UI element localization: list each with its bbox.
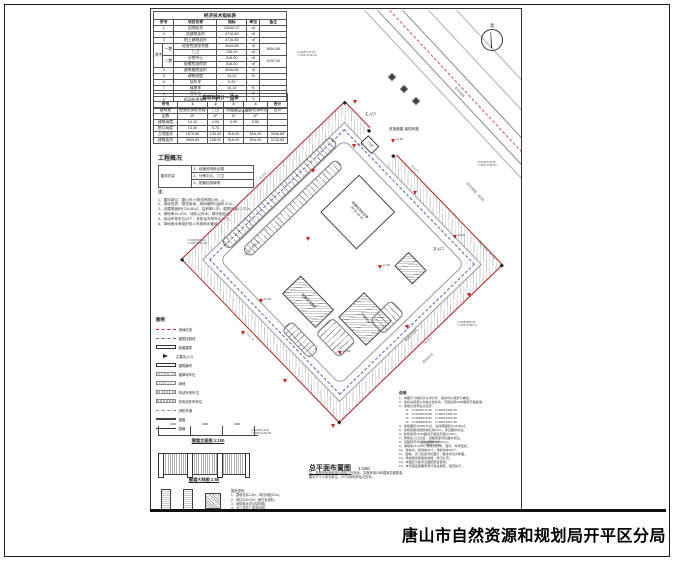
elevation-marker-icon: 12.50 — [391, 139, 395, 143]
fence-post-section — [161, 489, 171, 511]
marker-triangle — [378, 265, 382, 269]
table-cell: 经营检测综合楼 — [178, 108, 208, 114]
overview-comp-item: 3、配套检测库房 — [191, 180, 253, 187]
building-label: 配套检测库房 — [300, 294, 316, 310]
overview-comp-item: 2、分拣中心、门卫 — [191, 173, 253, 180]
elevation-marker-icon — [467, 293, 471, 297]
north-needle-shadow — [490, 32, 491, 48]
table-cell: 3549.85 — [178, 137, 208, 143]
legend-item: 建筑控制线 — [156, 334, 220, 343]
coordinate-label: X=4283478.63Y=40571203.48 — [251, 429, 271, 436]
table-cell: 其中 — [154, 43, 163, 67]
legend-label: 非机动车停车位 — [179, 399, 203, 404]
marker-triangle — [405, 325, 409, 329]
table-title: 建筑物统计一览表 — [154, 94, 288, 102]
dim-tick — [158, 426, 159, 435]
plan-label: 现状围墙（拆除） — [465, 181, 487, 204]
table-cell: 4716.85 — [268, 137, 288, 143]
elevation-marker-icon — [353, 100, 357, 104]
edge-dimension: 219.77 — [245, 332, 255, 342]
arrow-symbol — [163, 354, 168, 358]
edge-dimension: 224.91 — [423, 336, 433, 346]
elevation-marker-icon: 12.62 — [453, 235, 457, 239]
table-cell: 135.00 — [208, 137, 224, 143]
overview-comp-label: 建设内容 — [159, 166, 192, 188]
elevation-marker-icon: 12.60 — [259, 299, 263, 303]
legend-item: 建筑编号 — [156, 361, 220, 370]
street-tree-icon — [388, 73, 396, 81]
fence-post-section — [183, 489, 193, 511]
marker-triangle — [467, 293, 471, 297]
notes-lines: 1、本图尺寸除标高以米计外，其余均以毫米为单位。2、坐标采用唐山市独立坐标系，高… — [399, 396, 521, 468]
stripes-symbol — [156, 390, 176, 395]
marker-triangle — [338, 351, 342, 355]
coordinate-y: Y=40571206.15 — [297, 54, 317, 57]
table-title: 经济技术指标表 — [154, 12, 287, 20]
overview-row: 建设内容1、经营检测综合楼 — [159, 166, 254, 173]
elevation-marker-icon: 12.56 — [352, 144, 356, 148]
legend-label: 建筑控制线 — [179, 336, 196, 341]
legend-label: 主要出入口 — [176, 354, 193, 359]
road-line — [402, 10, 522, 147]
elevation-marker-icon — [413, 191, 417, 195]
dim-text: 3000 — [170, 422, 176, 426]
fence-elevation-drawing: 300030003000 围墙立面图 1:100 — [158, 421, 258, 444]
legend-item: 植草砖车位 — [156, 370, 220, 379]
elevation-marker-icon — [241, 331, 245, 335]
coordinate-label: X=4283771.25Y=40571206.15 — [297, 51, 317, 58]
table-title-row: 经济技术指标表 — [154, 12, 287, 20]
legend-item: 绿地 — [156, 379, 220, 388]
elevation-marker-icon: 12.55 — [378, 265, 382, 269]
double-line-symbol — [156, 418, 176, 420]
marker-triangle — [241, 331, 245, 335]
legend-label: 消防车道 — [179, 408, 193, 413]
stripes2-symbol — [156, 399, 176, 404]
marker-triangle — [391, 139, 395, 143]
table-cell: 建筑面积 — [154, 137, 178, 143]
table-cell: 一期 — [163, 43, 174, 55]
fence-elevation-title: 围墙立面图 1:100 — [158, 438, 258, 444]
coordinate-label: X=4283718.40Y=40571296.51 — [477, 161, 497, 168]
table-title-row: 建筑物统计一览表 — [154, 94, 288, 102]
hatch2-symbol — [156, 381, 176, 386]
fence-post — [217, 453, 223, 478]
legend-item: 主要出入口 — [156, 352, 220, 361]
marker-elevation: 12.50 — [396, 137, 403, 141]
boundary-corner-marker — [180, 257, 184, 261]
table-row: 建筑面积3549.85135.00516.00516.004716.85 — [154, 137, 288, 143]
marker-triangle — [331, 424, 335, 428]
table-cell: 3684.85 — [260, 43, 287, 55]
plan-title-notes: 注：本图坐标采用唐山市独立坐标系，高程采用1985国家高程基准。图中尺寸以米为单… — [309, 471, 419, 480]
marker-triangle — [283, 379, 287, 383]
elevation-marker-icon — [311, 169, 315, 173]
plan-label: 用地红线 — [421, 352, 434, 365]
building-label: 分拣中心 — [359, 313, 371, 325]
coordinate-y: Y=40571296.51 — [477, 164, 497, 167]
drawing-sheet: 经济技术指标表序号项目名称指标单位备注1用地面积23045.37㎡2总建筑面积4… — [150, 8, 522, 511]
fence-post — [187, 453, 193, 478]
overview-comp-item: 1、经营检测综合楼 — [191, 166, 253, 173]
north-arrow: 北 — [481, 23, 503, 53]
plan-label: 改造道路 接现状路 — [389, 127, 419, 132]
overview-table: 建设内容1、经营检测综合楼2、分拣中心、门卫3、配套检测库房 — [158, 165, 254, 188]
dash-gray-symbol — [156, 410, 176, 411]
hatch1-symbol — [156, 372, 176, 377]
marker-triangle — [413, 191, 417, 195]
general-note-line: 14、未尽事宜按国家现行有关规范、规定执行。 — [399, 464, 521, 468]
coordinate-y: Y=40571057.36 — [187, 242, 207, 245]
legend-item: 非机动车停车位 — [156, 397, 220, 406]
building-label: 门卫 — [366, 141, 373, 148]
plan-label: 次入口 — [433, 247, 444, 252]
legend: 图例 用地红线建筑控制线新建建筑主要出入口建筑编号植草砖车位绿地机动车停车位非机… — [156, 317, 220, 433]
elevation-marker-icon — [306, 237, 310, 241]
legend-rows: 用地红线建筑控制线新建建筑主要出入口建筑编号植草砖车位绿地机动车停车位非机动车停… — [156, 325, 220, 433]
fence-dimension-strip: 300030003000 — [158, 421, 258, 436]
plan-note-line: 图中尺寸以米为单位，X/Y为用地界址点坐标。 — [309, 475, 419, 479]
fence-footing-section — [205, 493, 221, 509]
fence-panel-drawing — [158, 453, 250, 475]
marker-elevation: 12.55 — [383, 263, 390, 267]
table-cell: 1032.00 — [260, 55, 287, 67]
coordinate-label: X=4283726.10Y=40571124.66 — [229, 107, 249, 114]
marker-triangle — [311, 169, 315, 173]
marker-triangle — [352, 144, 356, 148]
site-boundary: 219.77 224.91 219.77 224.91 经营检测综合楼2F H=… — [181, 101, 503, 423]
overview-title: 工程概况 — [158, 153, 288, 162]
marker-triangle — [306, 237, 310, 241]
boundary-corner-marker — [500, 263, 504, 267]
fence-section-details — [161, 487, 227, 511]
building-list-table-host: 建筑物统计一览表序号1234合计建筑物经营检测综合楼门卫分拣中心配套检测库房总计… — [153, 93, 287, 144]
dim-tick — [190, 426, 191, 435]
marker-elevation: 12.60 — [264, 297, 271, 301]
dim-text: 3000 — [202, 422, 208, 426]
coordinate-y: Y=40571338.74 — [457, 324, 477, 327]
rect-symbol — [156, 345, 176, 350]
general-notes-block: 说明: 1、本图尺寸除标高以米计外，其余均以毫米为单位。2、坐标采用唐山市独立坐… — [399, 391, 521, 468]
building-label: 经营检测综合楼2F H=14.10 — [347, 201, 368, 222]
fence-post — [245, 453, 251, 478]
red-dash-symbol — [156, 329, 176, 330]
north-circle — [481, 29, 503, 51]
numbox-symbol — [156, 363, 176, 368]
agency-title: 唐山市自然资源和规划局开平区分局 — [402, 522, 666, 546]
legend-label: 植草砖车位 — [179, 372, 196, 377]
edge-dimension: 219.77 — [410, 164, 420, 174]
boundary-corner-marker — [337, 420, 341, 424]
dim-text: 3000 — [234, 422, 240, 426]
elevation-marker-icon — [331, 424, 335, 428]
legend-item: 机动车停车位 — [156, 388, 220, 397]
site-plan-document: 经济技术指标表序号项目名称指标单位备注1用地面积23045.37㎡2总建筑面积4… — [0, 0, 674, 561]
elevation-marker-icon — [405, 325, 409, 329]
fence-detail-drawing: 围墙大样图 1:50 — [158, 453, 250, 483]
table-cell: 516.00 — [224, 137, 244, 143]
legend-item: 新建建筑 — [156, 343, 220, 352]
coordinate-y: Y=40571203.48 — [251, 432, 271, 435]
table-cell: 二期 — [163, 55, 174, 67]
fence-notes: 围墙说明：1、围墙总高1.8m，砖柱间距3.0m。2、砖柱240×240，刷白色… — [231, 489, 303, 511]
plan-label: 主入口 — [365, 112, 376, 117]
marker-elevation: 12.62 — [458, 233, 465, 237]
elevation-marker-icon — [283, 379, 287, 383]
title-bar-rule — [150, 509, 666, 512]
legend-item: 消防车道 — [156, 406, 220, 415]
dim-tick — [222, 426, 223, 435]
north-needle — [491, 32, 492, 48]
marker-triangle — [259, 299, 263, 303]
street-tree-icon — [400, 85, 408, 93]
marker-elevation: 12.58 — [343, 349, 350, 353]
legend-title: 图例 — [156, 317, 220, 323]
fence-post — [158, 453, 164, 478]
legend-label: 用地红线 — [179, 327, 193, 332]
legend-label: 新建建筑 — [179, 345, 193, 350]
fence-detail-title: 围墙大样图 1:50 — [158, 477, 250, 483]
legend-label: 绿地 — [179, 381, 186, 386]
coordinate-label: X=4283609.12Y=40571057.36 — [187, 239, 207, 246]
blue-dash-symbol — [156, 338, 176, 339]
street-tree-icon — [412, 97, 420, 105]
legend-label: 建筑编号 — [179, 363, 193, 368]
elevation-marker-icon: 12.58 — [338, 351, 342, 355]
table-cell: 516.00 — [244, 137, 268, 143]
boundary-corner-marker — [343, 100, 347, 104]
gate-post — [391, 154, 395, 158]
marker-triangle — [353, 100, 357, 104]
building-list-table: 建筑物统计一览表序号1234合计建筑物经营检测综合楼门卫分拣中心配套检测库房总计… — [153, 93, 288, 144]
legend-item: 用地红线 — [156, 325, 220, 334]
coordinate-y: Y=40571124.66 — [229, 110, 249, 113]
table-cell: 135.00 — [208, 131, 224, 137]
marker-triangle — [453, 235, 457, 239]
coordinate-label: X=4283566.28Y=40571338.74 — [457, 321, 477, 328]
marker-elevation: 12.56 — [357, 142, 364, 146]
legend-label: 机动车停车位 — [179, 390, 199, 395]
